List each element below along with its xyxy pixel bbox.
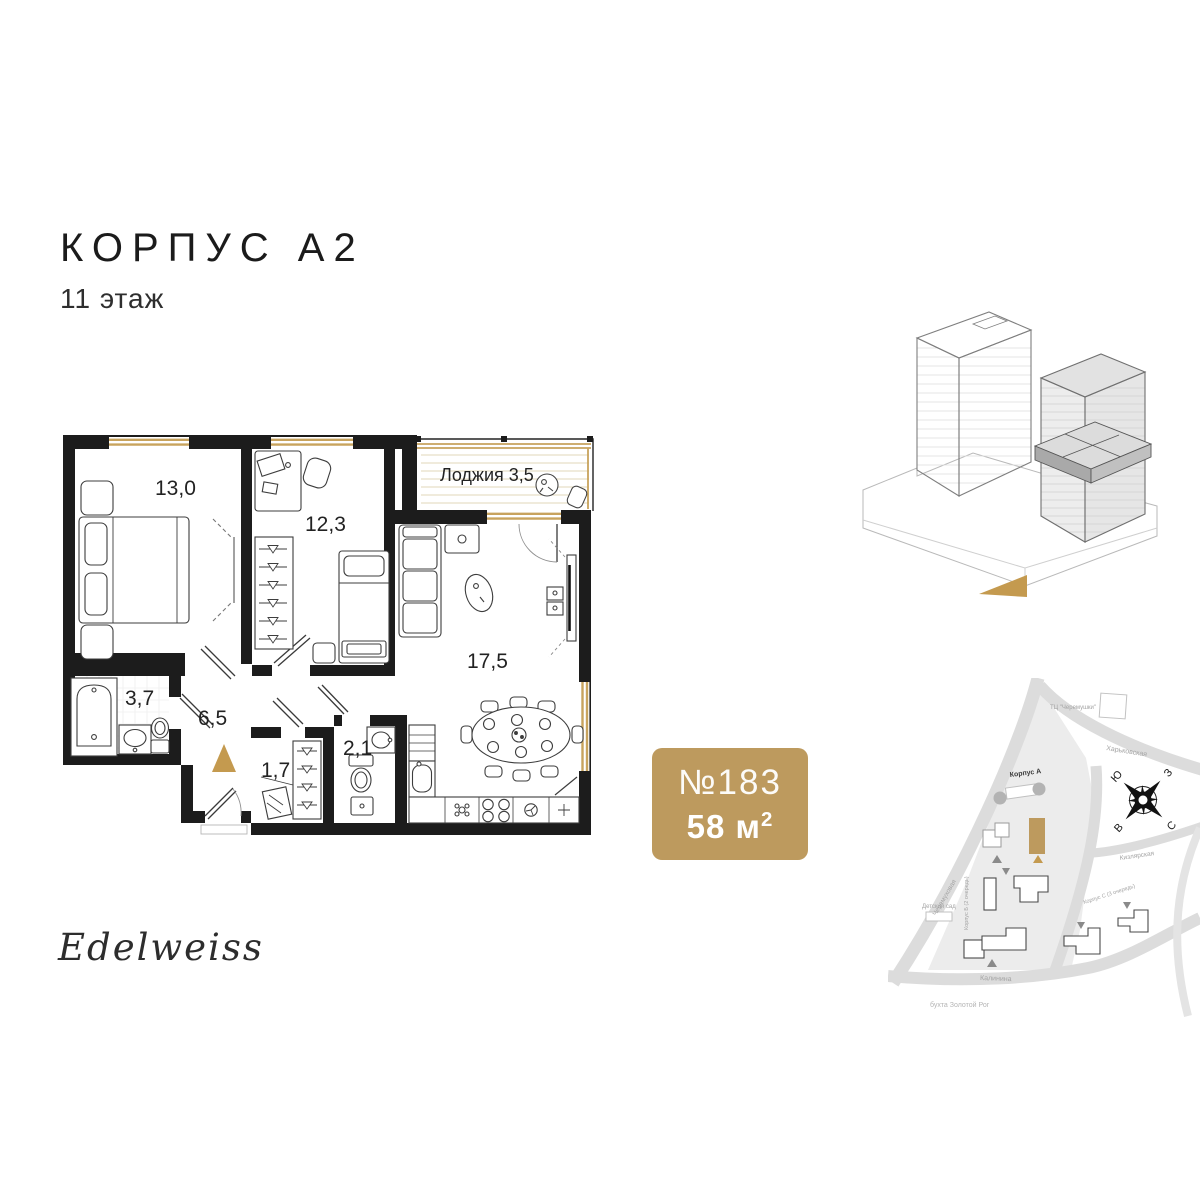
- building-axonometric: [855, 298, 1165, 618]
- bedroom-1-furniture: [79, 481, 234, 659]
- site-map: ТЦ "Черемушки" Корпус А Корпус Б (2 очер…: [888, 678, 1200, 1018]
- bathtub-icon: [71, 678, 117, 756]
- wardrobe-icon: [255, 537, 293, 649]
- area-hallway: 6,5: [198, 707, 227, 730]
- bedroom-2-furniture: [255, 451, 389, 663]
- apartment-area: 58 м2: [687, 808, 774, 846]
- single-bed-icon: [339, 551, 389, 663]
- apartment-number: №183: [678, 763, 782, 803]
- street-kalinina-label: Калинина: [980, 975, 1012, 983]
- korpus-b-label: Корпус Б (2 очередь): [964, 876, 970, 930]
- area-wc: 2,1: [343, 737, 372, 760]
- shoe-cabinet-icon: [261, 777, 293, 819]
- bay-label: бухта Золотой Рог: [930, 1001, 990, 1009]
- edelweiss-logo: Edelweiss: [58, 926, 264, 969]
- double-bed-icon: [79, 517, 189, 623]
- loggia-label: Лоджия 3,5: [440, 465, 534, 485]
- entrance-arrow: [212, 744, 236, 772]
- compass-west-label: З: [1162, 766, 1176, 779]
- fan-icon: [525, 804, 537, 816]
- chair-icon: [301, 456, 332, 490]
- hanger-rack-icon: [293, 741, 321, 819]
- floor-subtitle: 11 этаж: [60, 283, 365, 315]
- area-bedroom-2: 12,3: [305, 513, 346, 536]
- sofa-icon: [399, 525, 441, 637]
- floor-plan: 13,0 12,3 17,5 6,5 3,7 1,7 2,1 Лоджия 3,…: [55, 425, 625, 845]
- coffee-table-icon: [461, 571, 497, 615]
- korpus-a-marker: [1033, 783, 1046, 796]
- toilet-icon: [151, 718, 169, 753]
- page-title: КОРПУС А2: [60, 226, 365, 271]
- korpus-a-marker: [994, 792, 1007, 805]
- nightstand-icon: [313, 643, 335, 663]
- compass-south-label: Ю: [1109, 768, 1125, 784]
- apartment-badge: №183 58 м2: [652, 748, 808, 860]
- area-bedroom-1: 13,0: [155, 477, 196, 500]
- dining-table-icon: [461, 697, 583, 781]
- area-wardrobe: 1,7: [261, 759, 290, 782]
- mall-label: ТЦ "Черемушки": [1050, 705, 1096, 711]
- washbasin-icon: [119, 725, 151, 754]
- current-building: [1029, 818, 1045, 854]
- desk-icon: [255, 451, 301, 511]
- nightstand-icon: [81, 625, 113, 659]
- kitchen-living-furniture: [399, 525, 583, 823]
- bathroom-fixtures: [71, 676, 169, 756]
- area-bathroom: 3,7: [125, 687, 154, 710]
- wc-toilet-icon: [349, 755, 373, 815]
- loggia-table-icon: [536, 474, 558, 496]
- tv-unit-icon: [547, 539, 576, 657]
- tower-highlighted: [1035, 354, 1151, 542]
- loggia-chair-icon: [566, 485, 589, 510]
- mall-building: [1099, 693, 1127, 719]
- area-kitchen-living: 17,5: [467, 650, 508, 673]
- nightstand-icon: [81, 481, 113, 515]
- header: КОРПУС А2 11 этаж: [60, 226, 365, 315]
- compass-east-label: В: [1112, 821, 1126, 834]
